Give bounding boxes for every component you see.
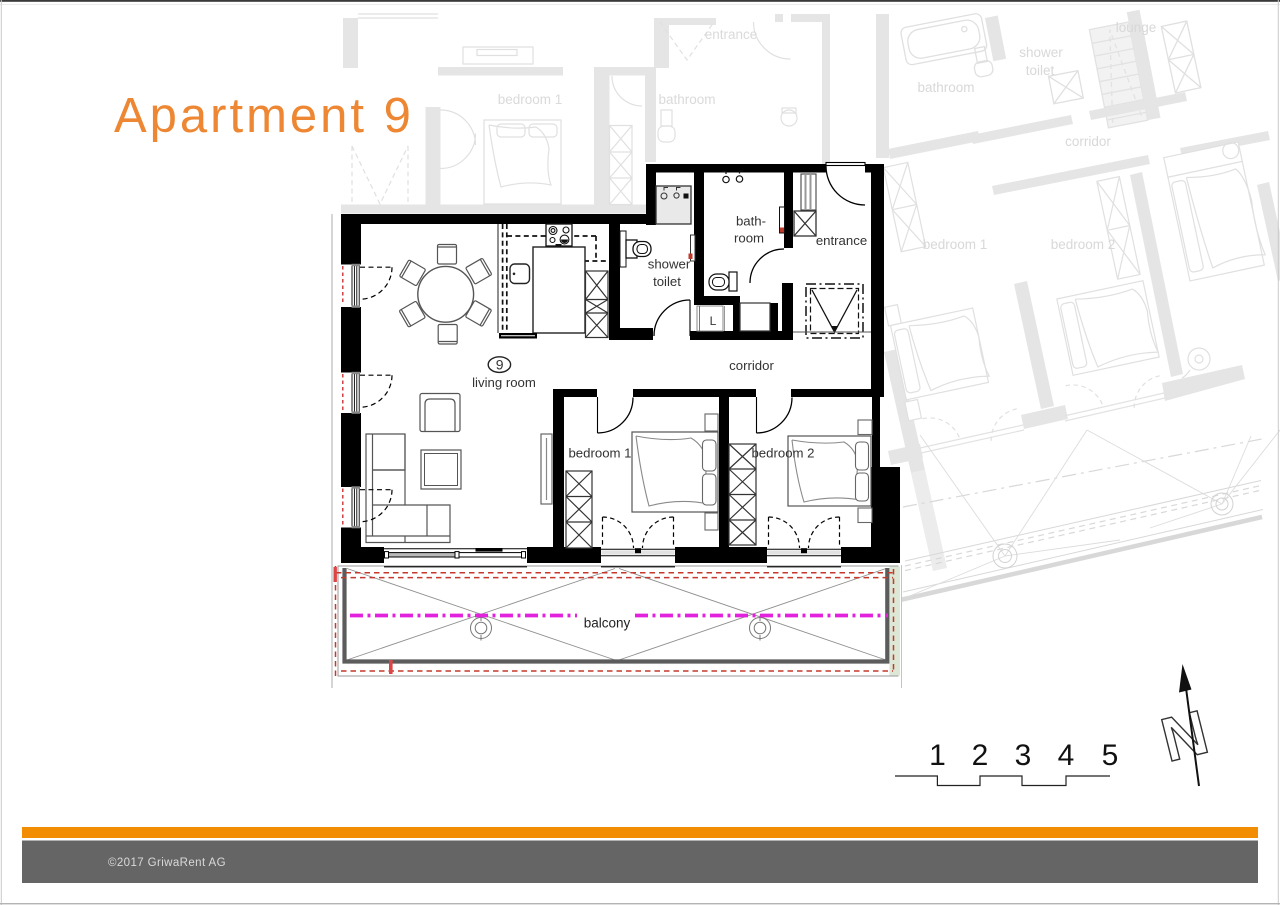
svg-text:bedroom 1: bedroom 1	[568, 446, 631, 461]
svg-text:toilet: toilet	[1026, 63, 1055, 78]
svg-text:bedroom 2: bedroom 2	[751, 446, 814, 461]
svg-text:9: 9	[496, 357, 504, 373]
svg-text:4: 4	[1058, 739, 1075, 772]
svg-text:toilet: toilet	[653, 274, 681, 289]
svg-text:lounge: lounge	[1116, 20, 1157, 35]
svg-text:bedroom 1: bedroom 1	[923, 237, 988, 252]
svg-text:room: room	[734, 231, 764, 246]
svg-text:entrance: entrance	[816, 233, 867, 248]
svg-text:living room: living room	[472, 375, 536, 390]
svg-text:©2017 GriwaRent AG: ©2017 GriwaRent AG	[108, 857, 226, 869]
svg-text:5: 5	[1102, 739, 1119, 772]
svg-text:bedroom 2: bedroom 2	[1051, 237, 1116, 252]
svg-text:corridor: corridor	[1065, 134, 1111, 149]
svg-text:3: 3	[1015, 739, 1032, 772]
svg-text:bedroom 1: bedroom 1	[498, 92, 563, 107]
svg-text:bathroom: bathroom	[917, 80, 974, 95]
svg-text:Apartment 9: Apartment 9	[114, 89, 414, 143]
svg-text:corridor: corridor	[729, 358, 774, 373]
svg-text:shower: shower	[648, 257, 691, 272]
svg-text:1: 1	[929, 739, 946, 772]
svg-text:2: 2	[972, 739, 989, 772]
svg-text:bath-: bath-	[736, 214, 766, 229]
svg-text:L: L	[710, 314, 717, 328]
svg-text:entrance: entrance	[705, 27, 758, 42]
svg-text:bathroom: bathroom	[658, 92, 715, 107]
svg-text:shower: shower	[1019, 45, 1063, 60]
svg-text:balcony: balcony	[584, 616, 631, 631]
